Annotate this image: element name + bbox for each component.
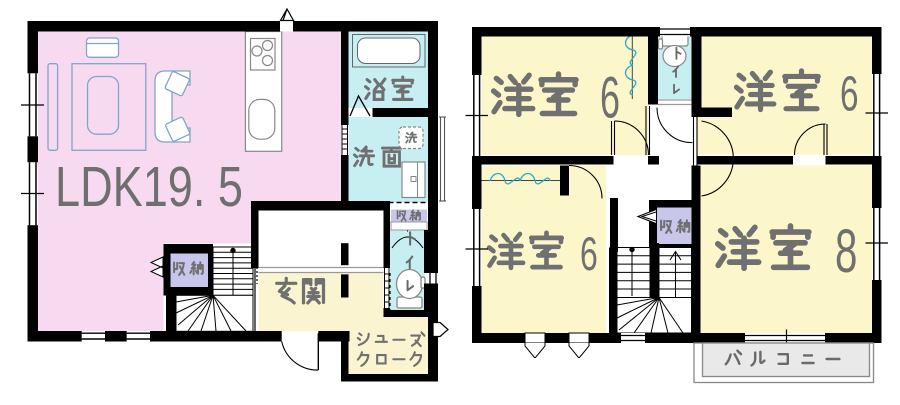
svg-text:6: 6 (840, 66, 859, 121)
svg-text:6: 6 (580, 228, 598, 281)
svg-text:8: 8 (835, 217, 857, 285)
svg-text:LDK19. 5: LDK19. 5 (55, 155, 243, 219)
